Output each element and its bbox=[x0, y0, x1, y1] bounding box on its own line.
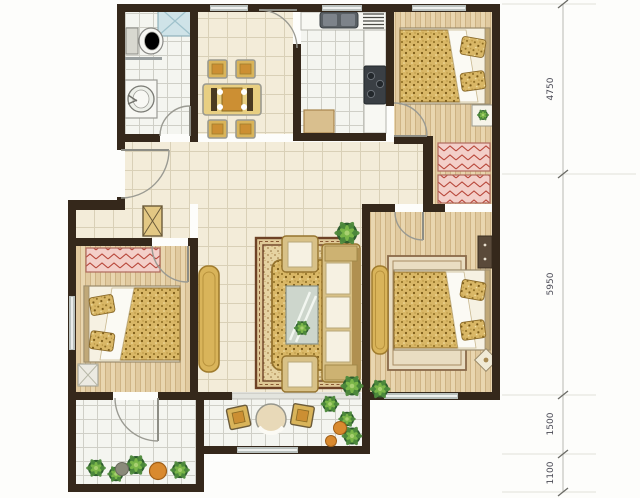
wall-bathroom-right bbox=[190, 4, 198, 142]
sliding-door-threshold bbox=[232, 393, 360, 399]
nightstand-icon bbox=[472, 105, 494, 126]
dining-chair-icon bbox=[236, 60, 255, 78]
wall-living-right bbox=[362, 204, 370, 454]
hallway-floor bbox=[125, 142, 423, 204]
double-bed-icon bbox=[394, 270, 490, 350]
wall-bedroom-left-top-a bbox=[76, 238, 152, 246]
wall-kitchen-right bbox=[386, 4, 394, 106]
armchair-icon bbox=[282, 356, 318, 392]
balcony-chair-icon bbox=[226, 405, 251, 430]
floor-plan-page: 4750 5950 1500 1100 bbox=[0, 0, 640, 498]
dimension-label: 4750 bbox=[546, 77, 556, 100]
kitchen-cabinet-icon bbox=[304, 110, 334, 133]
wardrobe-icon bbox=[86, 248, 160, 272]
wall-bedroom-left-right bbox=[190, 238, 198, 400]
wall-bedroom-right-top-b bbox=[423, 204, 445, 212]
stove-icon bbox=[364, 66, 386, 104]
dimension-label: 5950 bbox=[546, 272, 556, 295]
wall-kitchen-bottom bbox=[293, 133, 386, 141]
wall-entry-left bbox=[117, 4, 125, 150]
washbasin-icon bbox=[125, 80, 157, 118]
window-kitchen bbox=[322, 5, 362, 11]
planter-icon bbox=[150, 463, 167, 480]
toilet-icon bbox=[126, 28, 163, 54]
wardrobe-icon bbox=[438, 143, 490, 171]
dining-chair-icon bbox=[208, 120, 227, 138]
stone-icon bbox=[116, 463, 129, 476]
armchair-icon bbox=[282, 236, 318, 272]
balcony-table-icon bbox=[256, 404, 286, 434]
dimension-label: 1100 bbox=[546, 461, 556, 484]
wall-closet-left bbox=[423, 141, 433, 212]
wardrobe-icon bbox=[438, 175, 490, 203]
wall-balcony-left-bottom bbox=[68, 484, 204, 492]
window-bedroom-left bbox=[69, 296, 75, 350]
tv-cabinet-icon bbox=[199, 266, 219, 372]
wall-bedroom-left-bottom-b bbox=[158, 392, 198, 400]
balcony-chair-icon bbox=[290, 403, 314, 427]
wall-bathroom-bottom bbox=[117, 134, 160, 142]
double-bed-icon bbox=[400, 28, 490, 104]
wall-kitchen-left bbox=[293, 44, 301, 136]
window-balcony-main bbox=[237, 447, 298, 453]
dresser-icon bbox=[478, 236, 492, 268]
dining-chair-icon bbox=[236, 120, 255, 138]
window-bedroom-top bbox=[412, 5, 466, 11]
wall-right bbox=[492, 4, 500, 400]
planter-icon bbox=[334, 422, 347, 435]
floor-plan-drawing: 4750 5950 1500 1100 bbox=[0, 0, 640, 498]
sofa-icon bbox=[322, 244, 360, 382]
stool-icon bbox=[78, 364, 98, 386]
dimension-label: 1500 bbox=[546, 412, 556, 435]
dining-table-icon bbox=[203, 84, 261, 115]
dimension-annotations: 4750 5950 1500 1100 bbox=[502, 0, 636, 496]
window-dining bbox=[210, 5, 248, 11]
tv-cabinet-icon bbox=[372, 266, 388, 354]
window-bedroom-right bbox=[384, 393, 458, 399]
planter-icon bbox=[326, 436, 337, 447]
kitchen-sink-icon bbox=[320, 12, 358, 28]
double-bed-icon bbox=[84, 286, 180, 362]
wall-balcony-divider bbox=[196, 392, 204, 492]
wall-bedroom-left-bottom-a bbox=[76, 392, 113, 400]
dining-chair-icon bbox=[208, 60, 227, 78]
